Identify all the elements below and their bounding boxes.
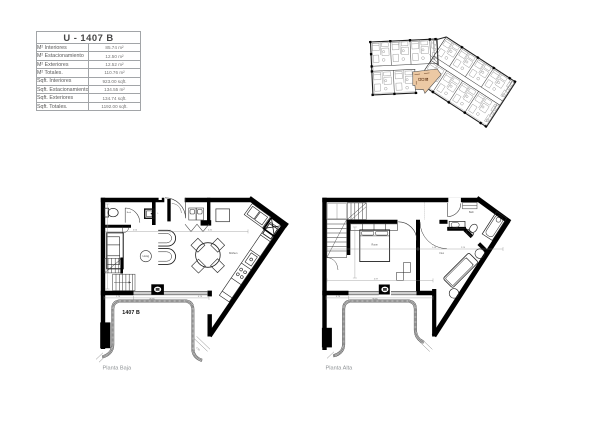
svg-text:Room: Room: [372, 244, 378, 247]
svg-text:4.50: 4.50: [195, 347, 200, 352]
svg-text:Kitchen: Kitchen: [229, 252, 238, 255]
svg-text:Living: Living: [143, 255, 150, 258]
svg-text:Bath: Bath: [469, 211, 474, 214]
svg-text:Bath: Bath: [127, 211, 132, 214]
svg-text:Planta Baja: Planta Baja: [103, 366, 132, 372]
svg-text:Flex: Flex: [440, 252, 445, 255]
svg-text:L: L: [158, 213, 160, 215]
svg-text:Planta Alta: Planta Alta: [326, 366, 354, 372]
svg-text:1407 B: 1407 B: [122, 310, 140, 316]
